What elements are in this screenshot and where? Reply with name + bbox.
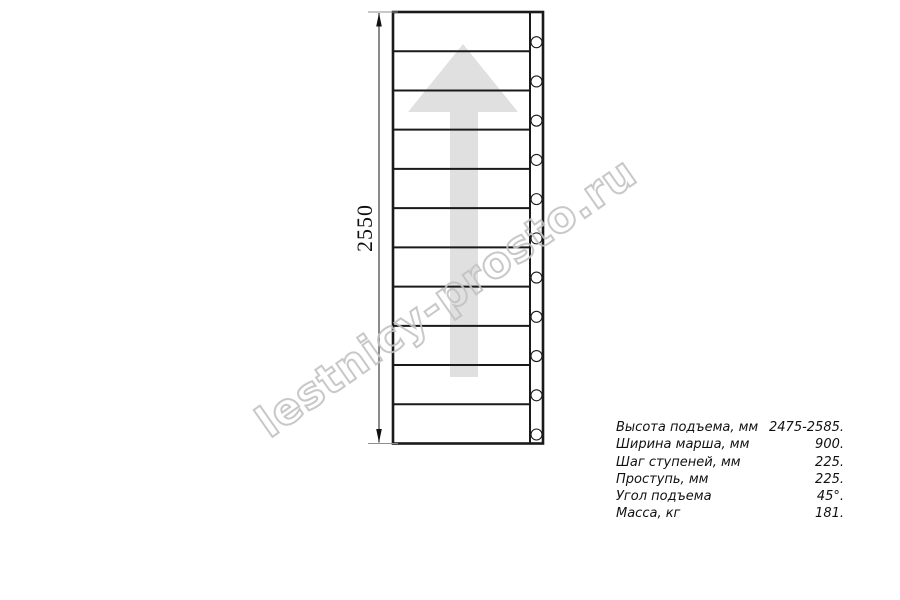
spec-value: 225.: [815, 454, 844, 471]
watermark-text: lestnicy-prosto.ru: [247, 148, 646, 448]
dimension-arrowhead-bottom: [376, 429, 382, 443]
spec-label: Проступь, мм: [616, 471, 708, 488]
spec-value: 45°.: [817, 488, 844, 505]
spec-value: 225.: [815, 471, 844, 488]
spec-row: Высота подъема, мм 2475-2585.: [616, 419, 844, 436]
bolt-hole-icon: [531, 429, 542, 440]
spec-label: Ширина марша, мм: [616, 436, 749, 453]
height-dimension-label: 2550: [352, 204, 377, 252]
technical-drawing-page: 2550 lestnicy-prosto.ru Высота подъема, …: [0, 0, 900, 600]
bolt-hole-icon: [531, 76, 542, 87]
spec-table: Высота подъема, мм 2475-2585. Ширина мар…: [616, 419, 844, 523]
spec-row: Проступь, мм 225.: [616, 471, 844, 488]
spec-value: 2475-2585.: [769, 419, 844, 436]
bolt-hole-icon: [531, 115, 542, 126]
spec-label: Масса, кг: [616, 505, 680, 522]
spec-value: 900.: [815, 436, 844, 453]
dimension-arrowhead-top: [376, 13, 382, 27]
spec-label: Угол подъема: [616, 488, 712, 505]
bolt-hole-icon: [531, 37, 542, 48]
spec-row: Масса, кг 181.: [616, 505, 844, 522]
spec-row: Ширина марша, мм 900.: [616, 436, 844, 453]
bolt-hole-icon: [531, 390, 542, 401]
bolt-hole-icon: [531, 311, 542, 322]
spec-row: Угол подъема 45°.: [616, 488, 844, 505]
spec-label: Шаг ступеней, мм: [616, 454, 741, 471]
spec-label: Высота подъема, мм: [616, 419, 758, 436]
spec-value: 181.: [815, 505, 844, 522]
bolt-hole-icon: [531, 272, 542, 283]
bolt-hole-icon: [531, 351, 542, 362]
spec-row: Шаг ступеней, мм 225.: [616, 454, 844, 471]
bolt-hole-icon: [531, 154, 542, 165]
